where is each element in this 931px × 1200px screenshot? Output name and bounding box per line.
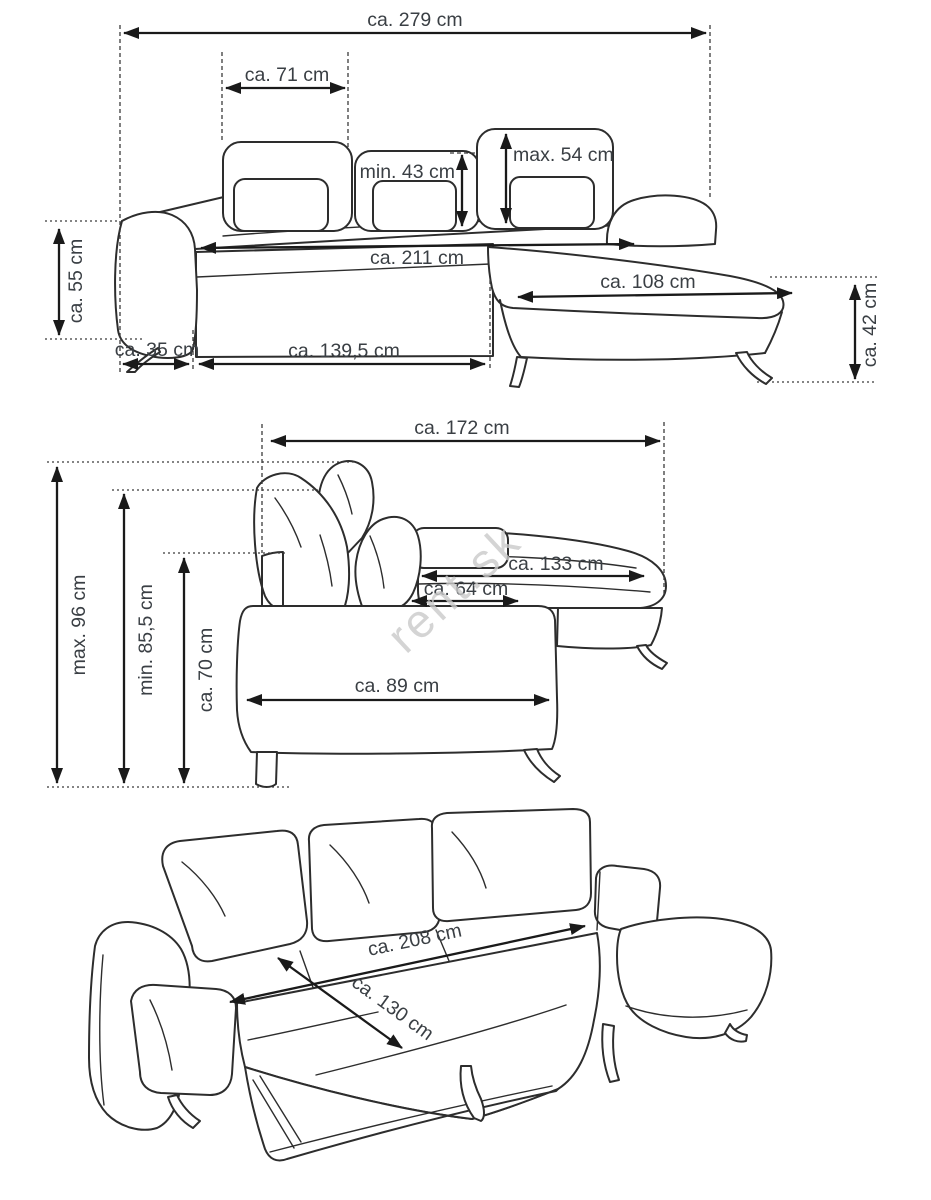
dim-seat-height-label: ca. 55 cm: [65, 239, 87, 324]
front-pillow-1: [234, 179, 328, 231]
side-rear-leg: [524, 749, 560, 782]
front-chaise-leg-left: [510, 357, 527, 387]
bed-back-cushion-3: [432, 809, 591, 921]
dim-chaise-height-label: ca. 42 cm: [859, 283, 881, 368]
dim-seat-width-label: ca. 211 cm: [370, 247, 464, 269]
dim-seat-depth-label: ca. 89 cm: [355, 675, 440, 697]
dim-min-height-label: min. 85,5 cm: [135, 584, 157, 696]
dim-front-section-width-label: ca. 139,5 cm: [288, 340, 400, 362]
front-view-drawing: ca. 279 cm ca. 71 cm min. 43 cm max. 54 …: [45, 9, 881, 387]
side-view-drawing: ca. 172 cm max. 96 cm min. 85,5 cm ca. 7…: [47, 417, 667, 787]
sofa-dimensions-svg: ca. 279 cm ca. 71 cm min. 43 cm max. 54 …: [0, 0, 931, 1200]
dimension-diagram: ca. 279 cm ca. 71 cm min. 43 cm max. 54 …: [0, 0, 931, 1200]
side-chaise-leg: [637, 645, 667, 669]
front-left-armrest: [115, 212, 197, 358]
dim-armrest-width-label: ca. 35 cm: [115, 339, 200, 361]
front-pillow-2: [373, 181, 456, 231]
bed-view-drawing: ca. 208 cm ca. 130 cm: [89, 809, 771, 1161]
dim-headrest-min-height-label: min. 43 cm: [360, 161, 455, 183]
dim-total-width-label: ca. 279 cm: [367, 9, 462, 31]
dim-max-height-label: max. 96 cm: [68, 575, 90, 676]
bed-left-armrest-cushion: [131, 985, 236, 1095]
front-right-armrest: [607, 195, 716, 246]
front-pillow-3: [510, 177, 594, 228]
dim-headrest-max-height-label: max. 54 cm: [513, 144, 614, 166]
front-chaise-leg-right: [736, 352, 772, 384]
dim-headrest-width-label: ca. 71 cm: [245, 64, 330, 86]
bed-back-cushion-1: [162, 831, 307, 962]
side-front-leg: [256, 752, 277, 787]
bed-chaise: [617, 917, 771, 1038]
front-chaise-bottom-edge: [521, 353, 765, 360]
side-chaise-body: [557, 608, 662, 649]
bed-back-cushion-2: [309, 819, 440, 941]
dim-backrest-height-label: ca. 70 cm: [195, 628, 217, 713]
dim-total-depth-label: ca. 172 cm: [414, 417, 509, 439]
bed-chaise-front-leg: [602, 1024, 619, 1082]
dim-chaise-width-label: ca. 108 cm: [600, 271, 695, 293]
